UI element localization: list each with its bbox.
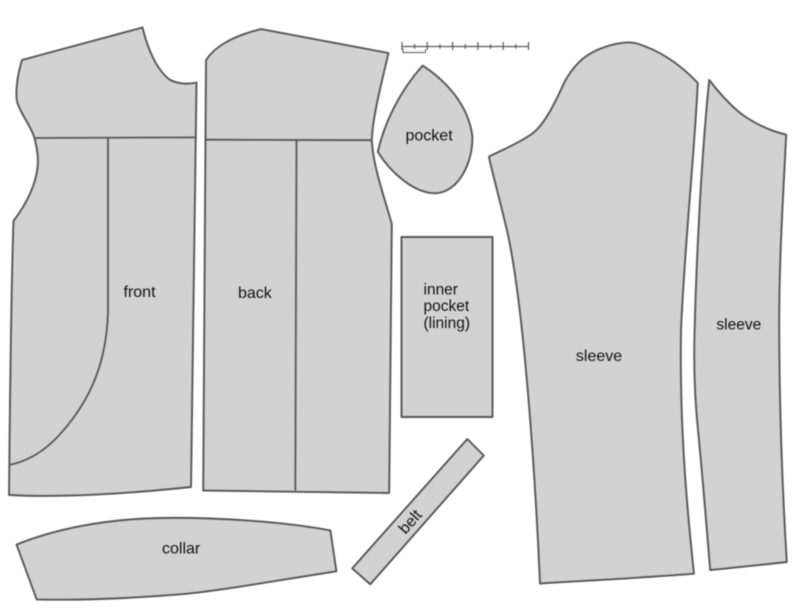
svg-text:back: back [238,285,273,302]
svg-text:front: front [124,284,157,301]
svg-text:sleeve: sleeve [716,317,761,334]
svg-text:pocket: pocket [424,298,470,315]
svg-text:collar: collar [162,541,201,558]
svg-text:pocket: pocket [406,128,454,145]
svg-text:sleeve: sleeve [576,348,622,365]
svg-text:inner: inner [424,282,458,299]
svg-text:(lining): (lining) [424,315,471,332]
